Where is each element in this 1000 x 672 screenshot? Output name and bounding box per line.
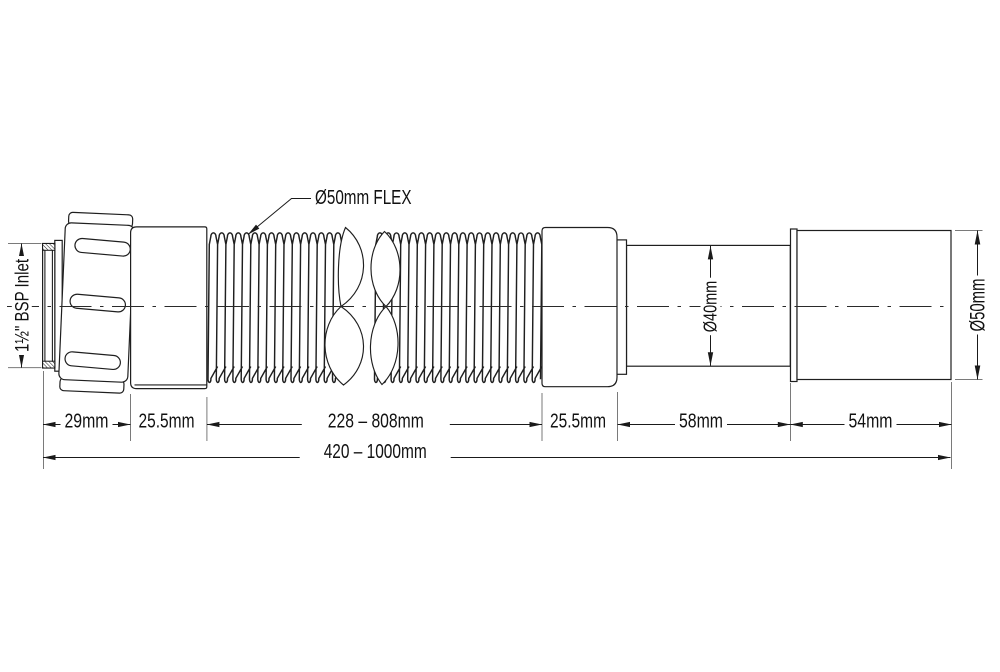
svg-text:58mm: 58mm (679, 411, 723, 433)
svg-text:228 – 808mm: 228 – 808mm (328, 410, 424, 432)
svg-text:420 – 1000mm: 420 – 1000mm (324, 441, 427, 463)
svg-text:54mm: 54mm (849, 411, 893, 433)
svg-text:29mm: 29mm (65, 411, 109, 433)
svg-text:1½" BSP Inlet: 1½" BSP Inlet (11, 259, 33, 352)
svg-text:25.5mm: 25.5mm (550, 411, 606, 433)
svg-text:Ø50mm FLEX: Ø50mm FLEX (315, 187, 412, 209)
svg-text:25.5mm: 25.5mm (139, 411, 195, 433)
svg-text:Ø40mm: Ø40mm (700, 281, 721, 333)
svg-text:Ø50mm: Ø50mm (966, 279, 990, 332)
